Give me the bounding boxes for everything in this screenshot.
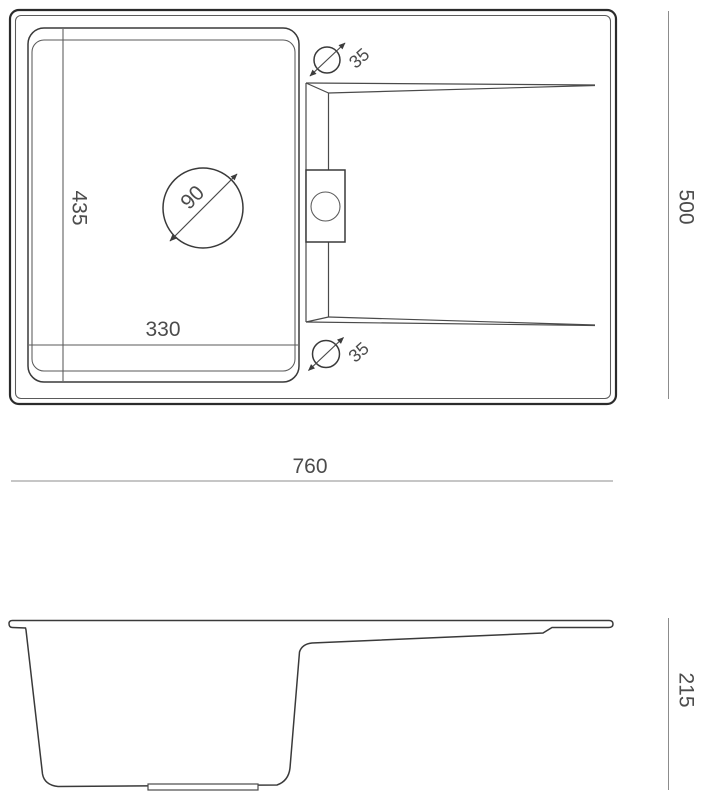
top-view: 90 35 35 435 330 <box>10 10 616 404</box>
side-height-label: 215 <box>675 672 698 707</box>
tap-hole-symbol-top: 35 <box>310 43 373 76</box>
dimension-overall-width: 760 <box>11 455 613 481</box>
diameter-slash-line <box>309 338 344 371</box>
dimension-side-height: 215 <box>669 618 698 790</box>
drainboard-top-left-bevel <box>306 83 329 93</box>
dimension-overall-depth: 500 <box>669 11 698 399</box>
faucet-hole-circle <box>311 192 340 221</box>
tap-hole-symbol-bottom: 35 <box>309 338 373 371</box>
drain-diameter-label: 90 <box>176 181 209 214</box>
sink-technical-drawing: 90 35 35 435 330 <box>0 0 704 800</box>
drainboard <box>306 83 595 326</box>
drainboard-top-edge-inner <box>329 86 596 94</box>
overall-width-label: 760 <box>292 455 327 478</box>
bowl-width-label: 330 <box>145 318 180 341</box>
overall-depth-label: 500 <box>675 189 698 224</box>
drainboard-bottom-left-bevel <box>306 317 329 322</box>
side-profile-outline <box>9 621 613 787</box>
drawing-canvas: 90 35 35 435 330 <box>0 0 704 800</box>
tap-hole-bottom-label: 35 <box>345 338 373 366</box>
bowl-depth-label: 435 <box>68 190 91 225</box>
drainboard-top-edge-outer <box>306 83 595 85</box>
drain-fitting-strip <box>148 784 258 790</box>
tap-hole-top-label: 35 <box>345 44 373 72</box>
drain-diameter-line <box>170 174 237 241</box>
side-view <box>9 621 613 791</box>
